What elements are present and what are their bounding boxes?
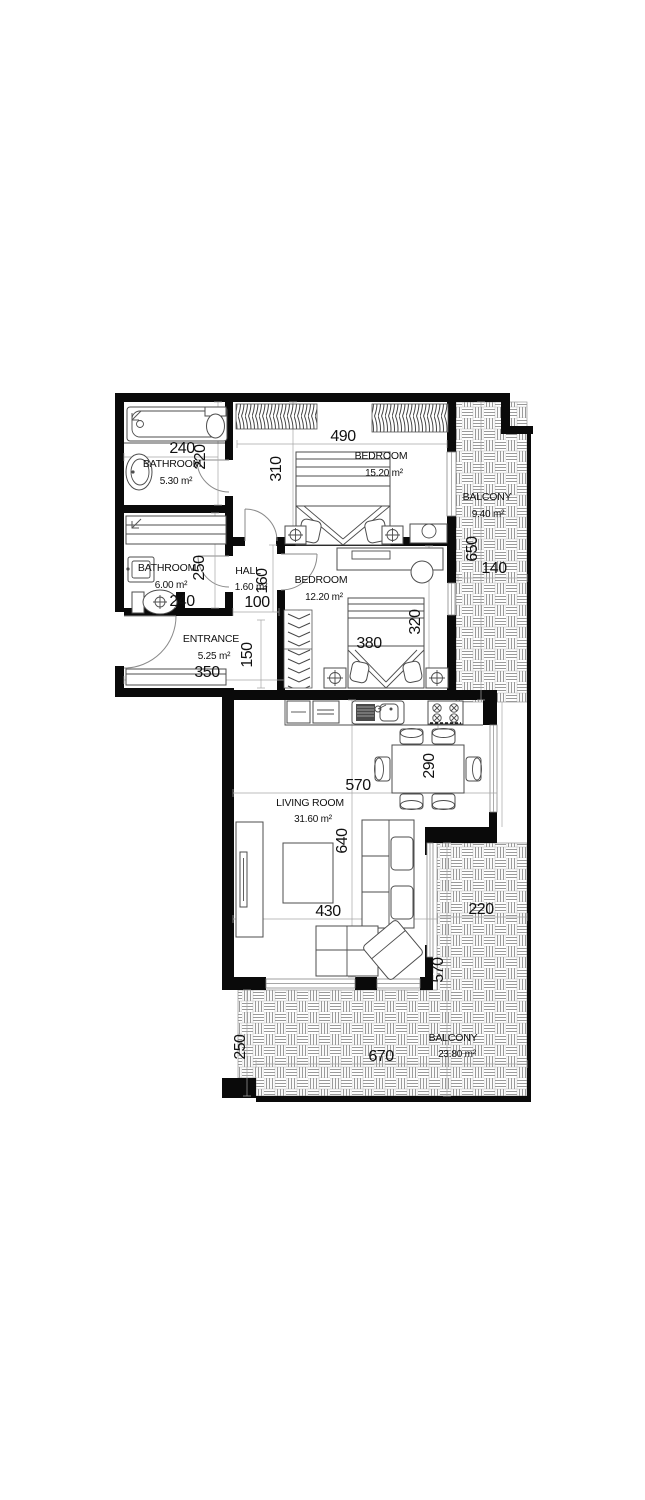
bedroom2-area: 12.20 m² [305,592,344,603]
chair-icon [432,729,455,745]
chair-icon [400,729,423,745]
dim-240-bathroom2: 240 [169,593,195,610]
cushion-icon [391,886,413,919]
chair-icon [432,794,455,810]
balcony1-name: BALCONY [463,491,512,503]
balcony2-area: 23.80 m² [438,1049,477,1060]
pillow-icon [402,660,423,683]
bedroom1-area: 15.20 m² [365,468,404,479]
appliance-icon [313,701,339,723]
bedroom1-name: BEDROOM [355,450,408,462]
entrance-area: 5.25 m² [198,651,231,662]
page: BATHROOM 5.30 m² BATHROOM 6.00 m² HALL 1… [0,0,645,1500]
dim-220-balcony2: 220 [468,901,494,918]
dim-150-entrance: 150 [239,642,256,668]
dresser-icon [410,524,447,543]
dim-310-bedroom1: 310 [268,456,285,482]
pillow-icon [349,661,370,684]
nightstand-icon [285,526,306,544]
dim-380-bedroom2: 380 [356,635,382,652]
dim-640-living: 640 [334,828,351,854]
dim-650-balcony1: 650 [464,536,481,562]
balcony1-area: 9.40 m² [472,509,505,520]
living-room-name: LIVING ROOM [276,797,344,809]
dim-570-balcony2: 570 [430,957,447,983]
nightstand-icon [426,668,448,688]
bathroom2-area: 6.00 m² [155,580,188,591]
cushion-icon [391,837,413,870]
kitchen [285,700,483,725]
dim-250-bathroom2: 250 [191,555,208,581]
wardrobe-icon [372,404,448,432]
bedroom1-door [245,509,277,541]
double-bed-icon [296,452,390,545]
kitchen-sink-icon [352,701,404,724]
dim-490-bedroom1: 490 [330,428,356,445]
wardrobe-icon [236,404,317,429]
dim-670-balcony2: 670 [368,1048,394,1065]
tv-unit-icon [236,822,263,937]
dim-250-balcony2: 250 [232,1034,249,1060]
nightstand-icon [382,526,403,544]
dim-290-dining: 290 [421,753,438,779]
dim-320-bedroom2: 320 [407,609,424,635]
dim-160-hall: 160 [254,568,271,594]
dim-100-hall: 100 [244,594,270,611]
chair-icon [375,757,391,781]
toilet-icon [205,407,226,438]
nightstand-icon [324,668,346,688]
living-room-furniture [236,820,424,981]
chair-icon [411,561,433,583]
entrance-door [124,616,176,668]
chair-icon [400,794,423,810]
bedroom2-name: BEDROOM [295,574,348,586]
dim-430-living: 430 [315,903,341,920]
floor-plan-svg: BATHROOM 5.30 m² BATHROOM 6.00 m² HALL 1… [0,0,645,1500]
dim-570-living: 570 [345,777,371,794]
desk-icon [337,548,443,583]
entrance-name: ENTRANCE [183,633,239,645]
dim-140-balcony1: 140 [481,560,507,577]
living-room-area: 31.60 m² [294,814,333,825]
counter-icon [126,516,226,544]
dim-350-entrance: 350 [194,664,220,681]
stove-icon [428,701,463,724]
balcony2-name: BALCONY [429,1032,478,1044]
coffee-table-icon [283,843,333,903]
bathroom1-area: 5.30 m² [160,476,193,487]
dim-220-bathroom1: 220 [192,444,209,470]
chair-icon [466,757,482,781]
bathroom2-name: BATHROOM [138,562,196,574]
